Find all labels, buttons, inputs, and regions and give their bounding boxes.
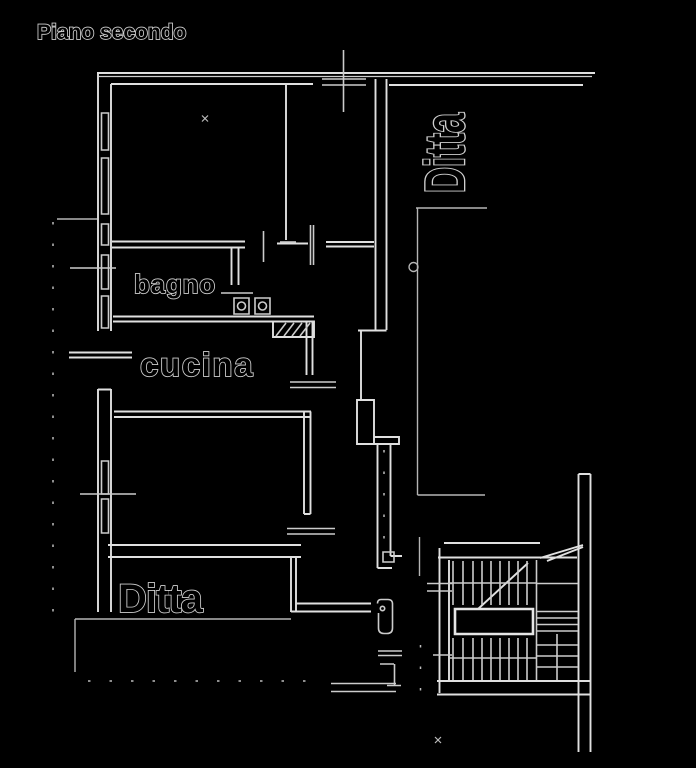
svg-text:Ditta: Ditta: [118, 577, 204, 621]
svg-text:cucina: cucina: [140, 346, 254, 383]
svg-text:Piano secondo: Piano secondo: [37, 21, 186, 44]
svg-text:Ditta: Ditta: [413, 112, 476, 193]
svg-text:bagno: bagno: [134, 269, 216, 299]
